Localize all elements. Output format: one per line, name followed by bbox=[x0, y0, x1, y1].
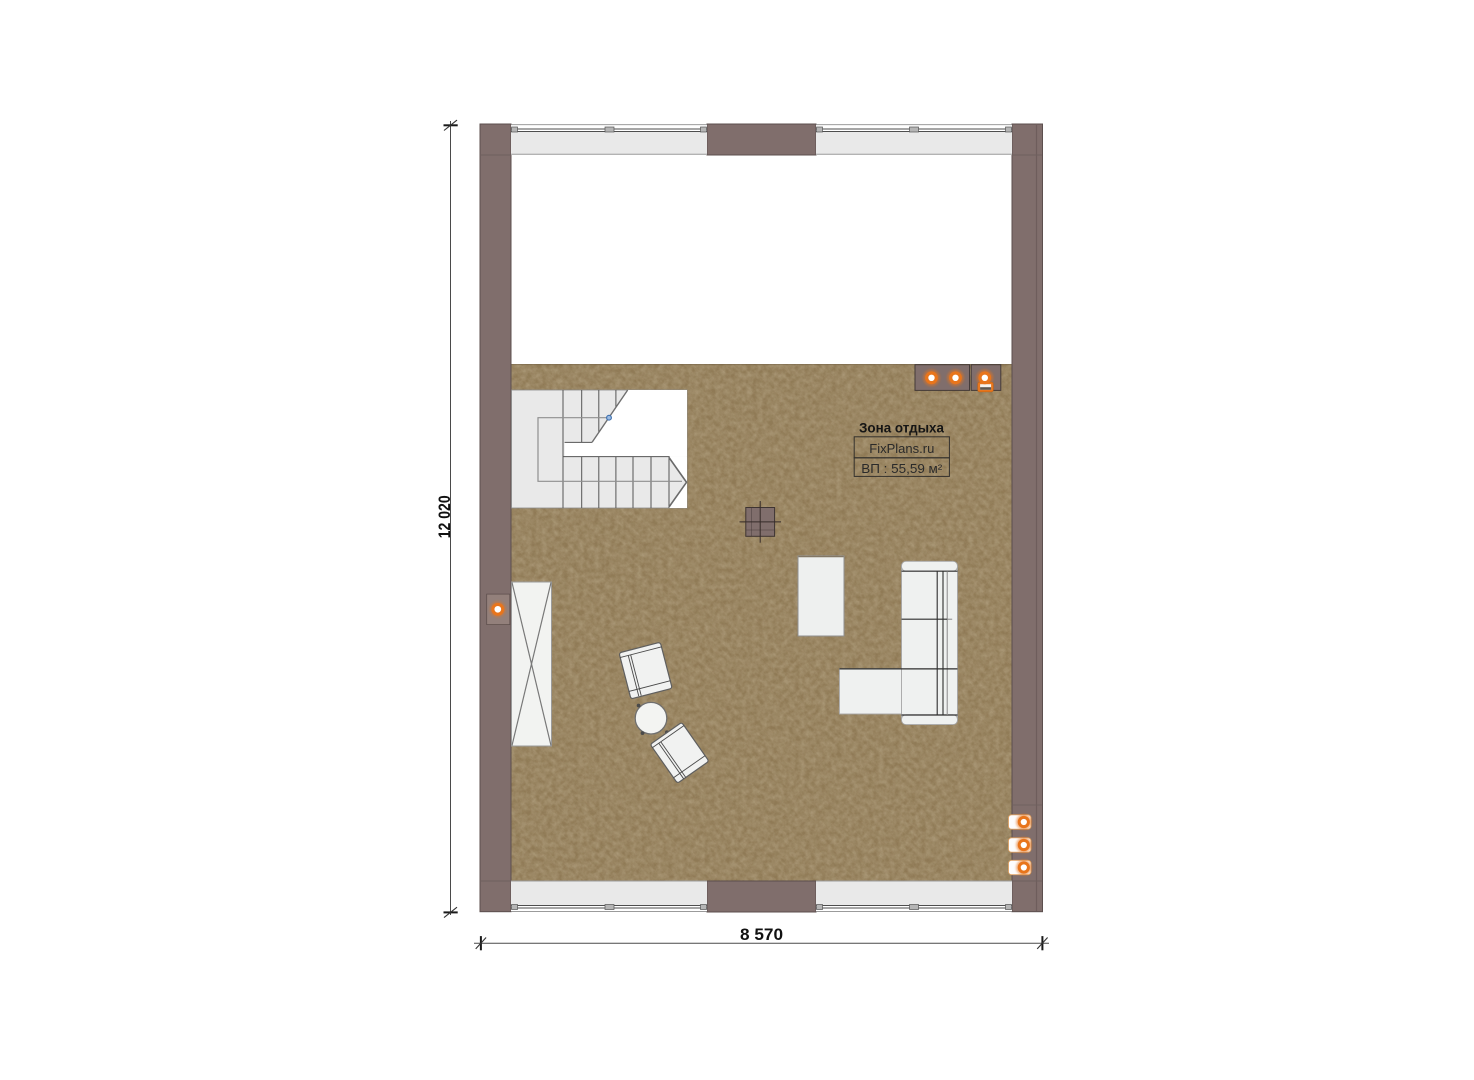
svg-text:8 570: 8 570 bbox=[740, 925, 783, 944]
svg-text:Зона отдыха: Зона отдыха bbox=[859, 421, 944, 436]
svg-text:FixPlans.ru: FixPlans.ru bbox=[869, 441, 934, 456]
svg-text:ВП : 55,59 м²: ВП : 55,59 м² bbox=[861, 461, 943, 476]
svg-text:12 020: 12 020 bbox=[435, 495, 454, 538]
